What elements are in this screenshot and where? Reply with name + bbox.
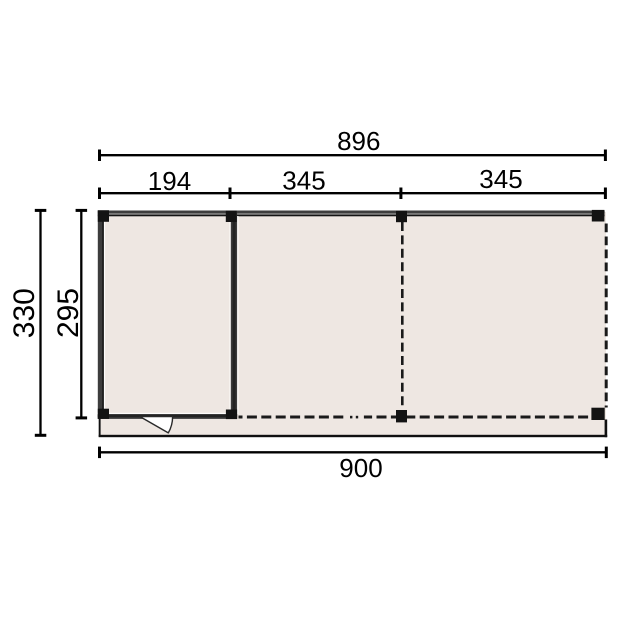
- svg-text:194: 194: [148, 166, 191, 196]
- svg-text:896: 896: [337, 126, 380, 156]
- svg-text:295: 295: [52, 288, 85, 338]
- svg-text:345: 345: [479, 164, 522, 194]
- svg-text:345: 345: [282, 166, 325, 196]
- svg-text:900: 900: [339, 453, 382, 483]
- svg-text:330: 330: [8, 288, 41, 338]
